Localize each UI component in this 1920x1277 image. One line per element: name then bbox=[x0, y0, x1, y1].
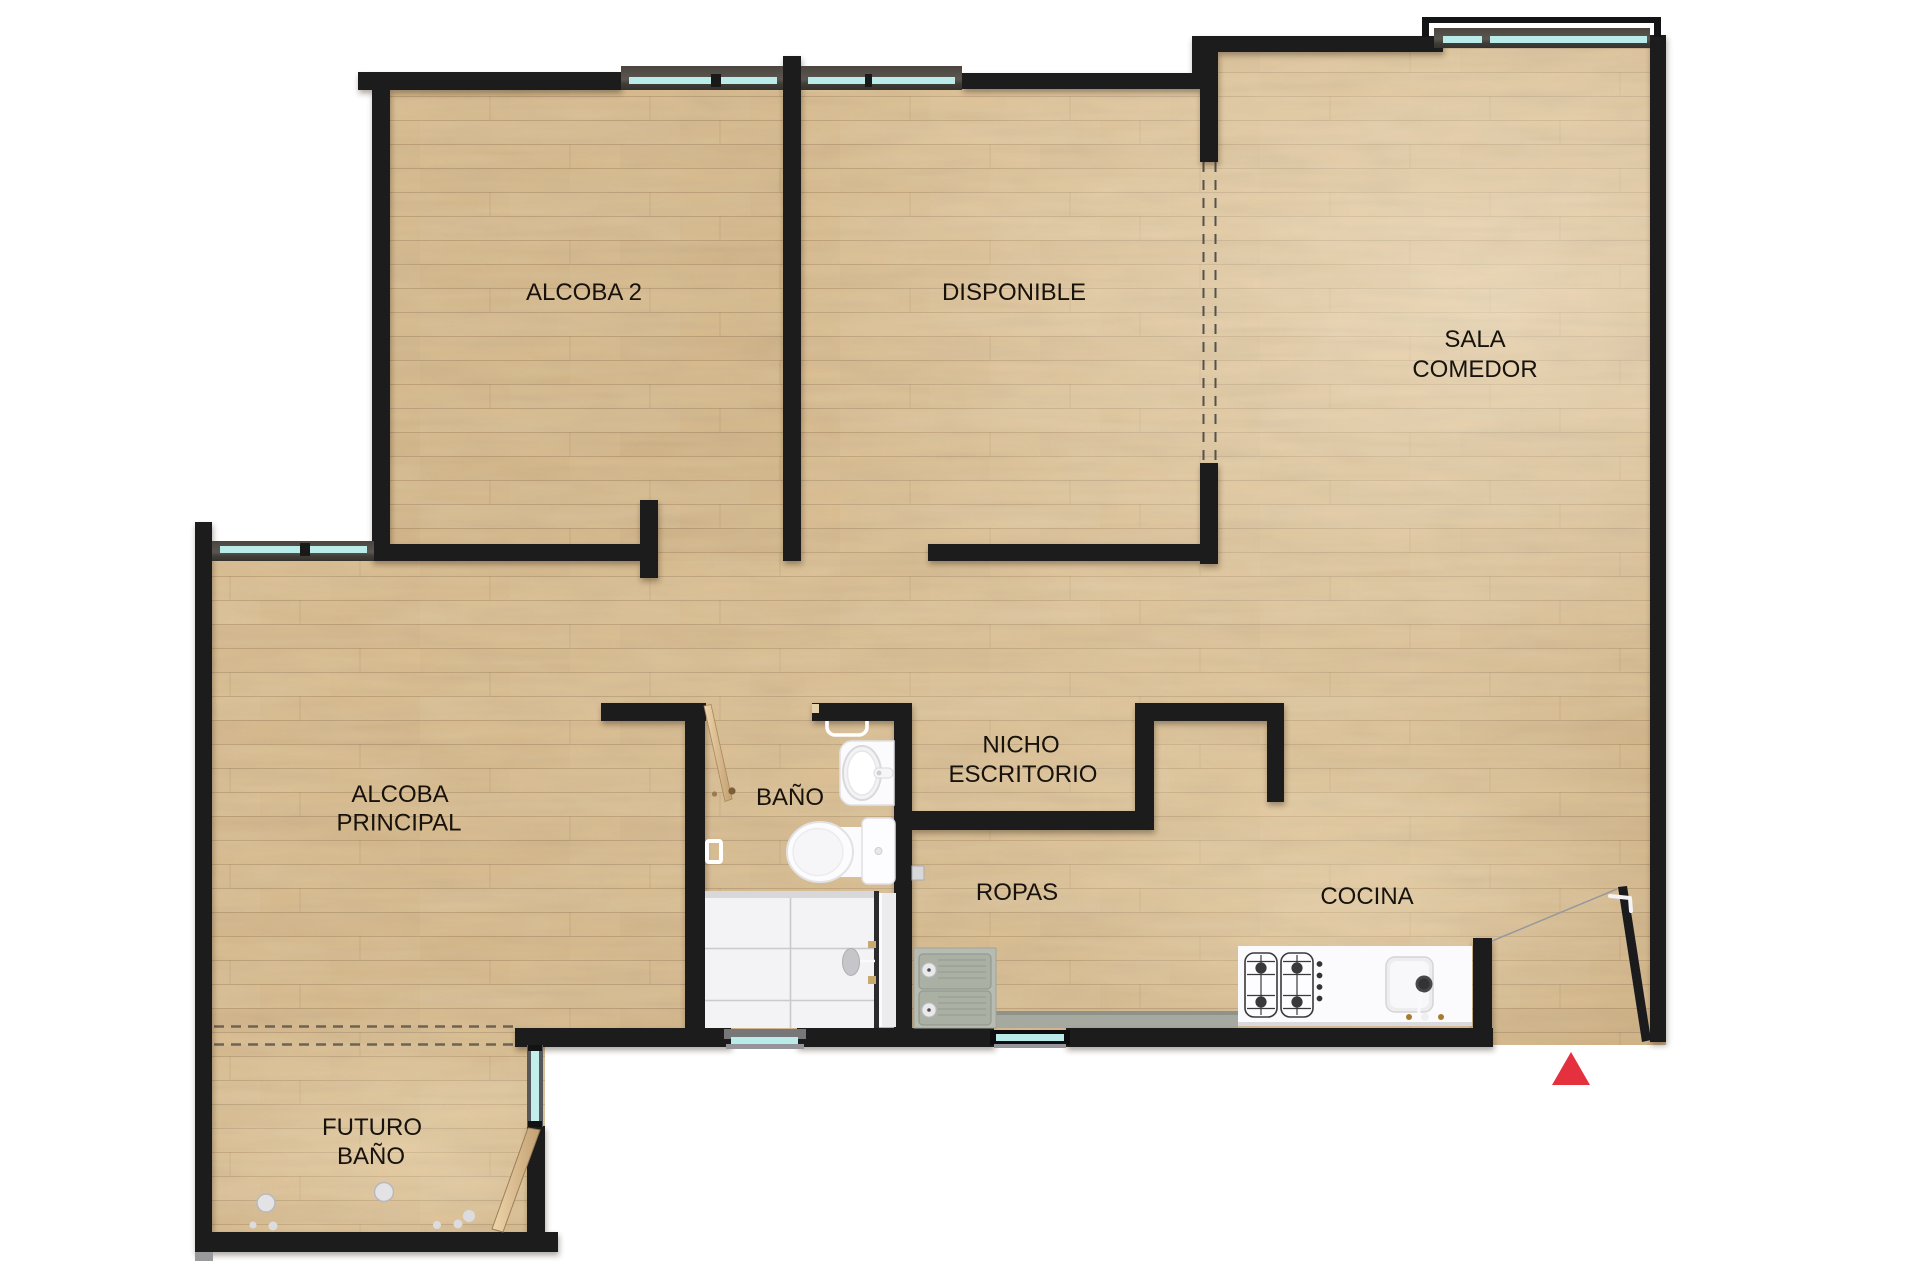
svg-text:BAÑO: BAÑO bbox=[337, 1143, 405, 1170]
svg-text:COMEDOR: COMEDOR bbox=[1412, 356, 1537, 383]
svg-text:ROPAS: ROPAS bbox=[976, 879, 1058, 906]
svg-text:FUTURO: FUTURO bbox=[322, 1114, 422, 1141]
svg-text:ALCOBA 2: ALCOBA 2 bbox=[526, 279, 642, 306]
svg-text:PRINCIPAL: PRINCIPAL bbox=[337, 810, 462, 837]
svg-text:NICHO: NICHO bbox=[982, 732, 1059, 759]
svg-text:ALCOBA: ALCOBA bbox=[351, 781, 448, 808]
svg-text:SALA: SALA bbox=[1444, 326, 1505, 353]
svg-text:ESCRITORIO: ESCRITORIO bbox=[949, 761, 1098, 788]
svg-text:DISPONIBLE: DISPONIBLE bbox=[942, 279, 1086, 306]
svg-text:BAÑO: BAÑO bbox=[756, 784, 824, 811]
svg-text:COCINA: COCINA bbox=[1320, 883, 1413, 910]
